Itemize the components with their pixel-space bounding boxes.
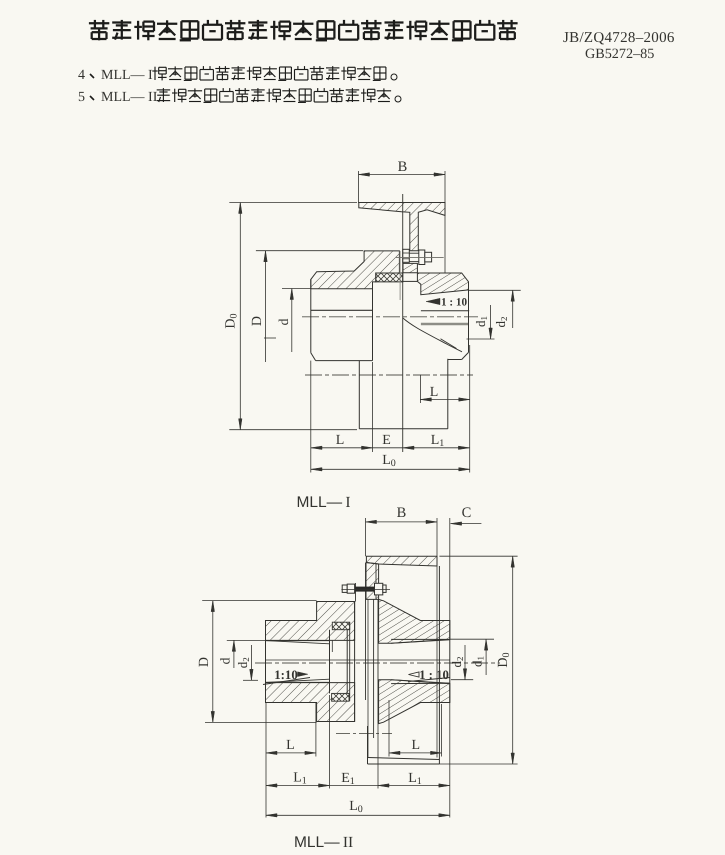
- svg-text:GB5272–85: GB5272–85: [585, 46, 654, 62]
- svg-text:MLL—: MLL—: [294, 834, 340, 851]
- svg-text:4: 4: [78, 68, 85, 83]
- svg-text:B: B: [397, 505, 407, 521]
- svg-text:MLL—: MLL—: [297, 494, 343, 511]
- svg-text:d: d: [218, 657, 233, 664]
- svg-text:L: L: [430, 385, 439, 400]
- svg-text:D: D: [250, 316, 265, 326]
- svg-text:L: L: [336, 433, 345, 448]
- svg-text:D: D: [197, 657, 212, 667]
- svg-text:JB/ZQ4728–2006: JB/ZQ4728–2006: [563, 30, 675, 46]
- svg-text:L: L: [412, 738, 421, 753]
- svg-text:L: L: [286, 738, 295, 753]
- svg-text:B: B: [398, 159, 408, 175]
- svg-text:I: I: [345, 494, 350, 511]
- svg-text:II: II: [343, 834, 353, 851]
- svg-text:MLL— II: MLL— II: [101, 90, 158, 105]
- svg-text:1 : 10: 1 : 10: [441, 297, 468, 309]
- svg-text:E: E: [382, 433, 391, 448]
- svg-text:C: C: [462, 505, 472, 521]
- svg-text:MLL— I: MLL— I: [101, 68, 153, 83]
- svg-text:5: 5: [78, 90, 85, 105]
- svg-text:d: d: [276, 318, 291, 325]
